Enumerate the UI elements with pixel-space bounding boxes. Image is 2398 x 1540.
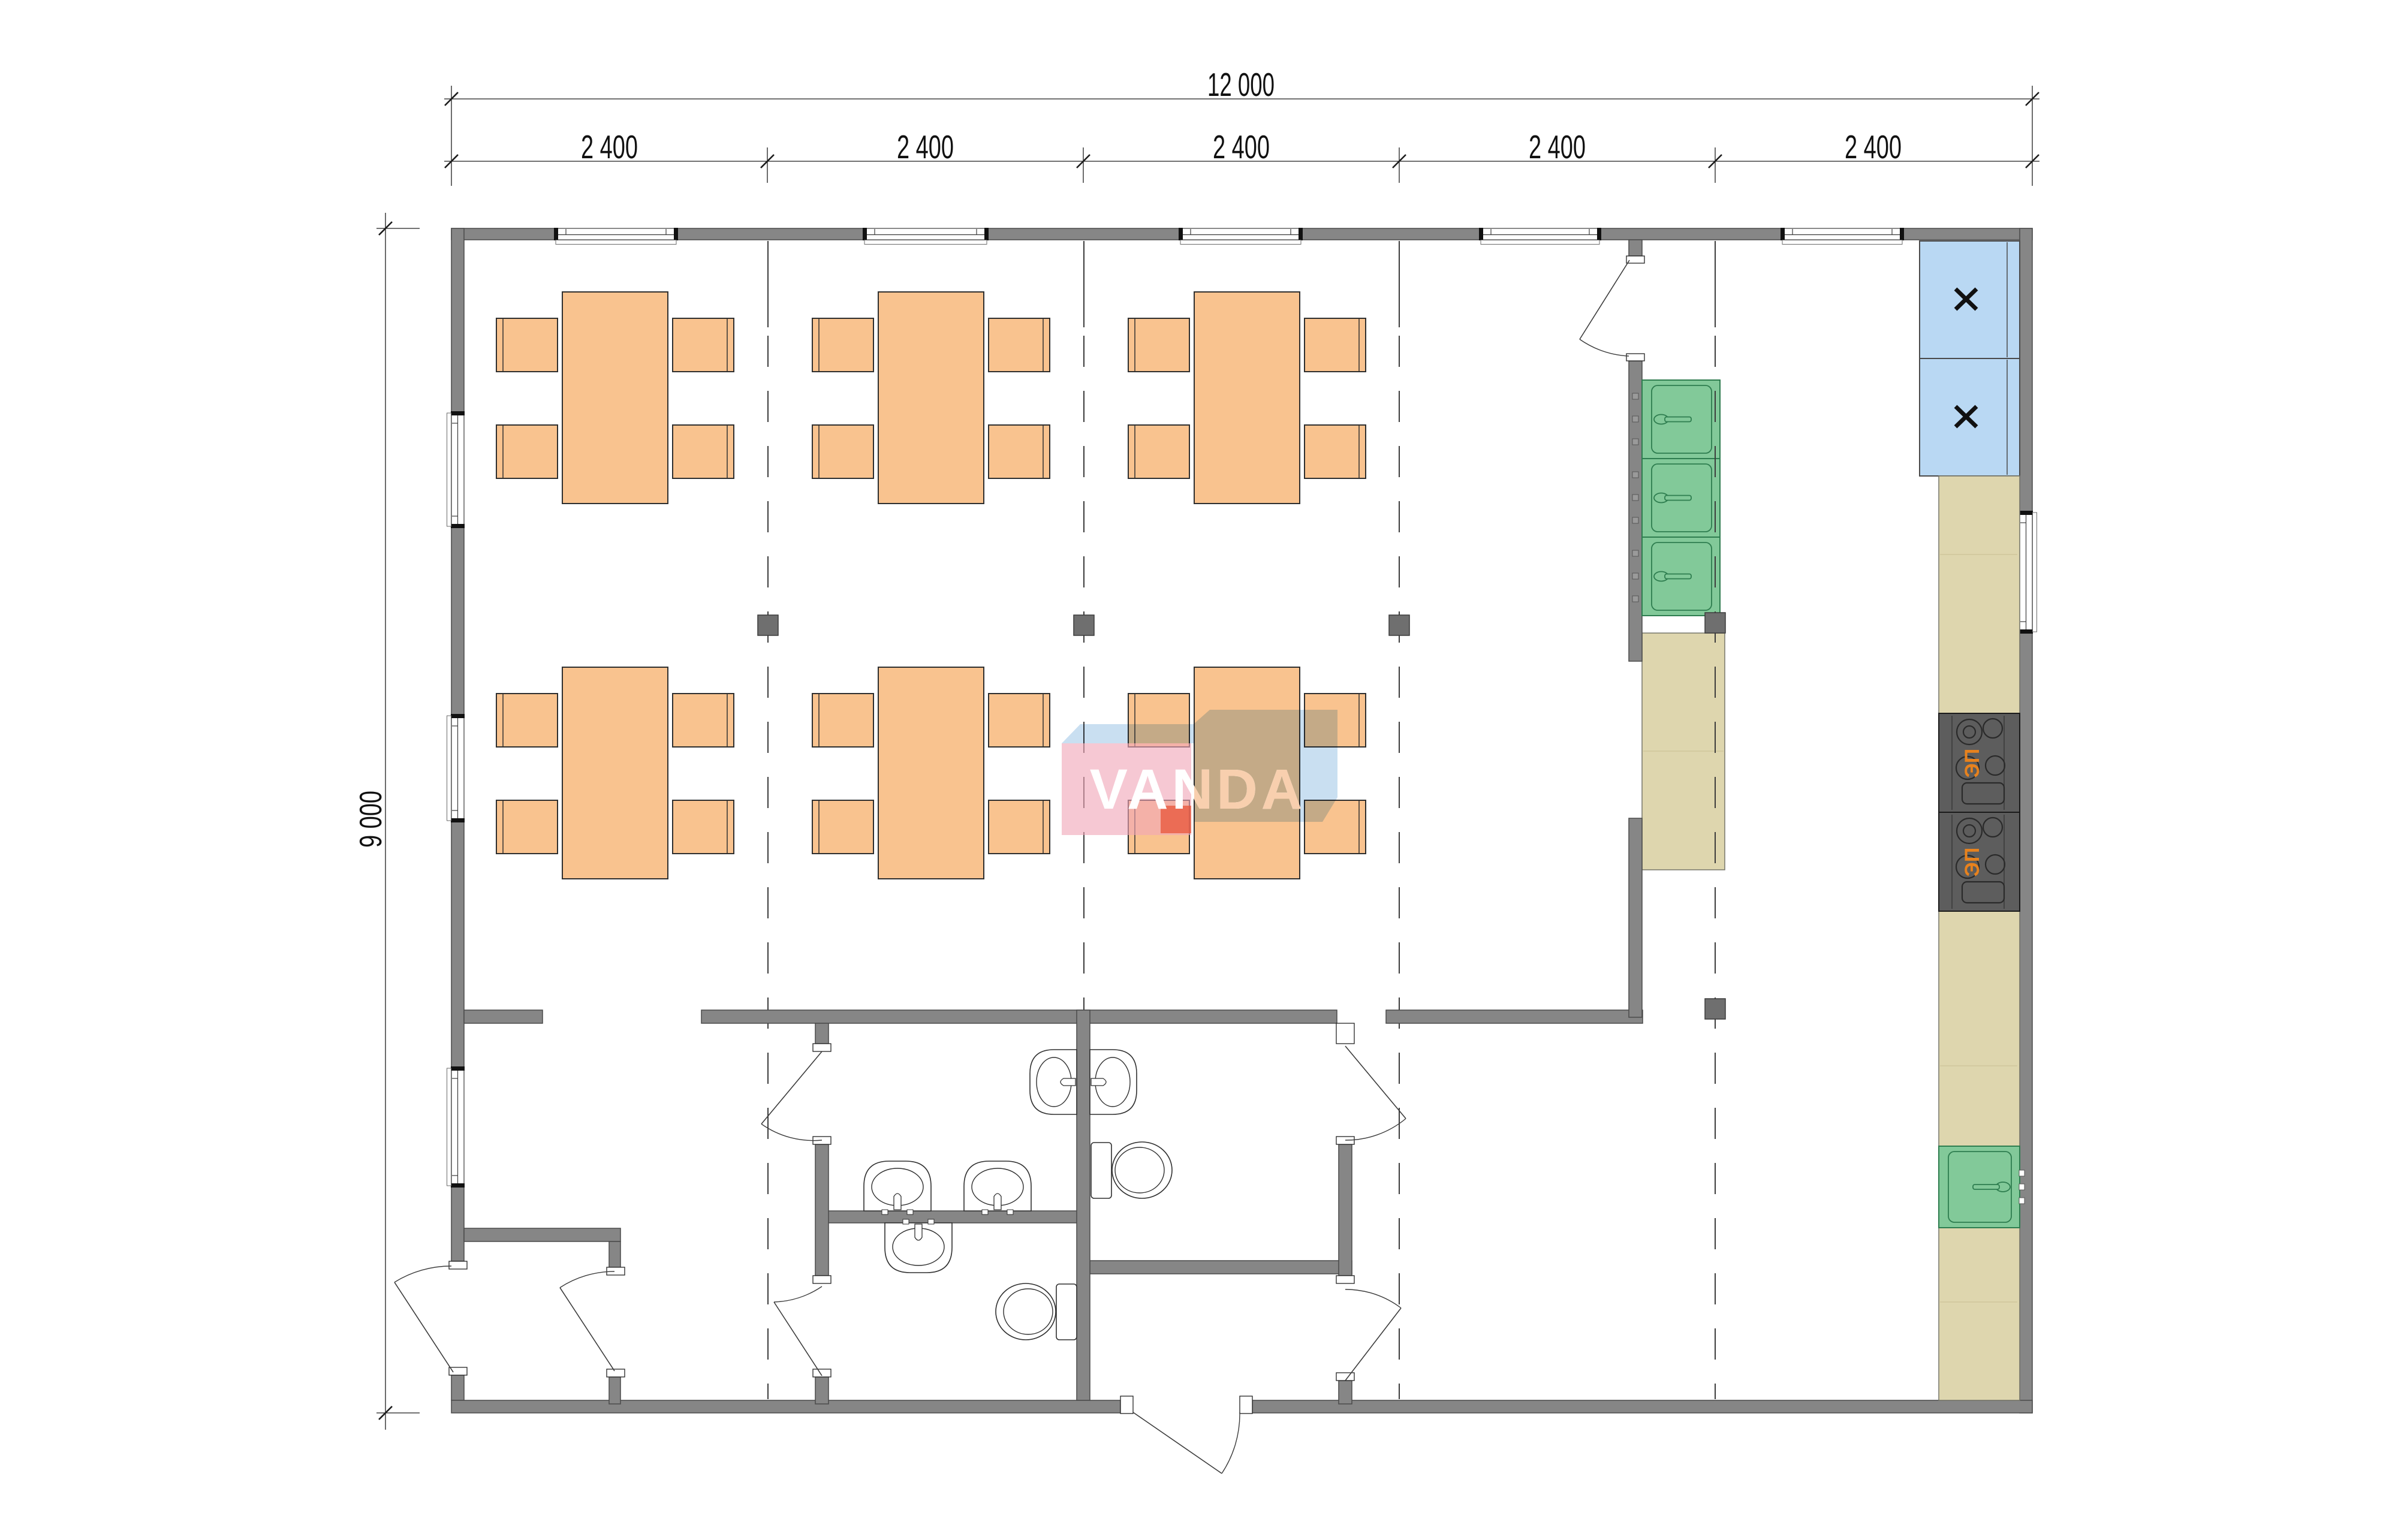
- svg-text:2 400: 2 400: [1213, 128, 1270, 165]
- svg-text:2 400: 2 400: [897, 128, 954, 165]
- svg-text:12 000: 12 000: [1207, 66, 1275, 103]
- svg-text:2 400: 2 400: [1845, 128, 1902, 165]
- svg-text:2 400: 2 400: [581, 128, 638, 165]
- svg-text:9 000: 9 000: [354, 791, 388, 848]
- svg-text:ЭП: ЭП: [1961, 848, 1984, 877]
- svg-text:2 400: 2 400: [1529, 128, 1586, 165]
- svg-text:ЭП: ЭП: [1961, 749, 1984, 778]
